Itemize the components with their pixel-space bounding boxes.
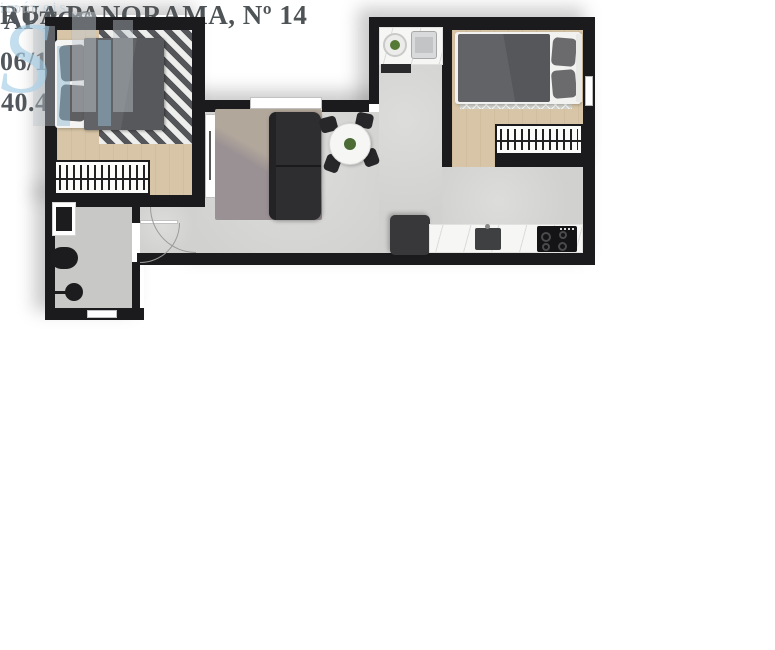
wall [132, 262, 140, 320]
cooktop [537, 226, 577, 252]
bedroom2-clothes-rack [495, 124, 583, 155]
bedroom1-pillow [59, 44, 87, 82]
wall [322, 100, 369, 112]
bedroom1-pillow [59, 84, 87, 122]
wall [442, 17, 452, 167]
utility-dark-strip [381, 64, 411, 73]
toilet [50, 247, 78, 269]
sofa [269, 112, 321, 220]
refrigerator [390, 215, 430, 255]
shower-head [65, 283, 83, 301]
burner [558, 242, 567, 251]
sofa-cushion-split [276, 165, 321, 167]
bedroom2-doorway-floor [452, 155, 495, 167]
utility-plant [390, 40, 400, 50]
sofa-back [269, 112, 276, 220]
burner [542, 243, 550, 251]
burner [541, 232, 551, 242]
bedroom1-duvet [84, 38, 164, 130]
kitchen-faucet [485, 224, 490, 229]
laundry-sink-bowl [415, 37, 433, 53]
bedroom1-clothes-rack [54, 160, 150, 195]
wall [369, 17, 379, 104]
table-plant [344, 138, 356, 150]
wall [137, 253, 595, 265]
bedroom2-pillow [551, 37, 577, 67]
bedroom2-window [585, 76, 593, 106]
bedroom2-pillow [551, 69, 577, 99]
bedroom2-duvet [458, 34, 550, 102]
cooktop-knobs [560, 228, 574, 230]
burner [559, 231, 567, 239]
wall [495, 155, 595, 167]
front-door [250, 97, 322, 109]
wall [583, 17, 595, 265]
bathroom-window [87, 310, 117, 318]
rack-rod [56, 178, 148, 180]
wall [132, 197, 140, 223]
bathroom-sink [56, 207, 72, 231]
floorplan-sheet: RUA PANORAMA, Nº 14 APTOS 06/16/26 40.40… [0, 0, 775, 650]
kitchen-sink [475, 228, 501, 250]
wall [45, 17, 205, 30]
bedroom2-headboard [576, 34, 582, 102]
wall [192, 17, 205, 207]
rack-rod [497, 140, 581, 142]
